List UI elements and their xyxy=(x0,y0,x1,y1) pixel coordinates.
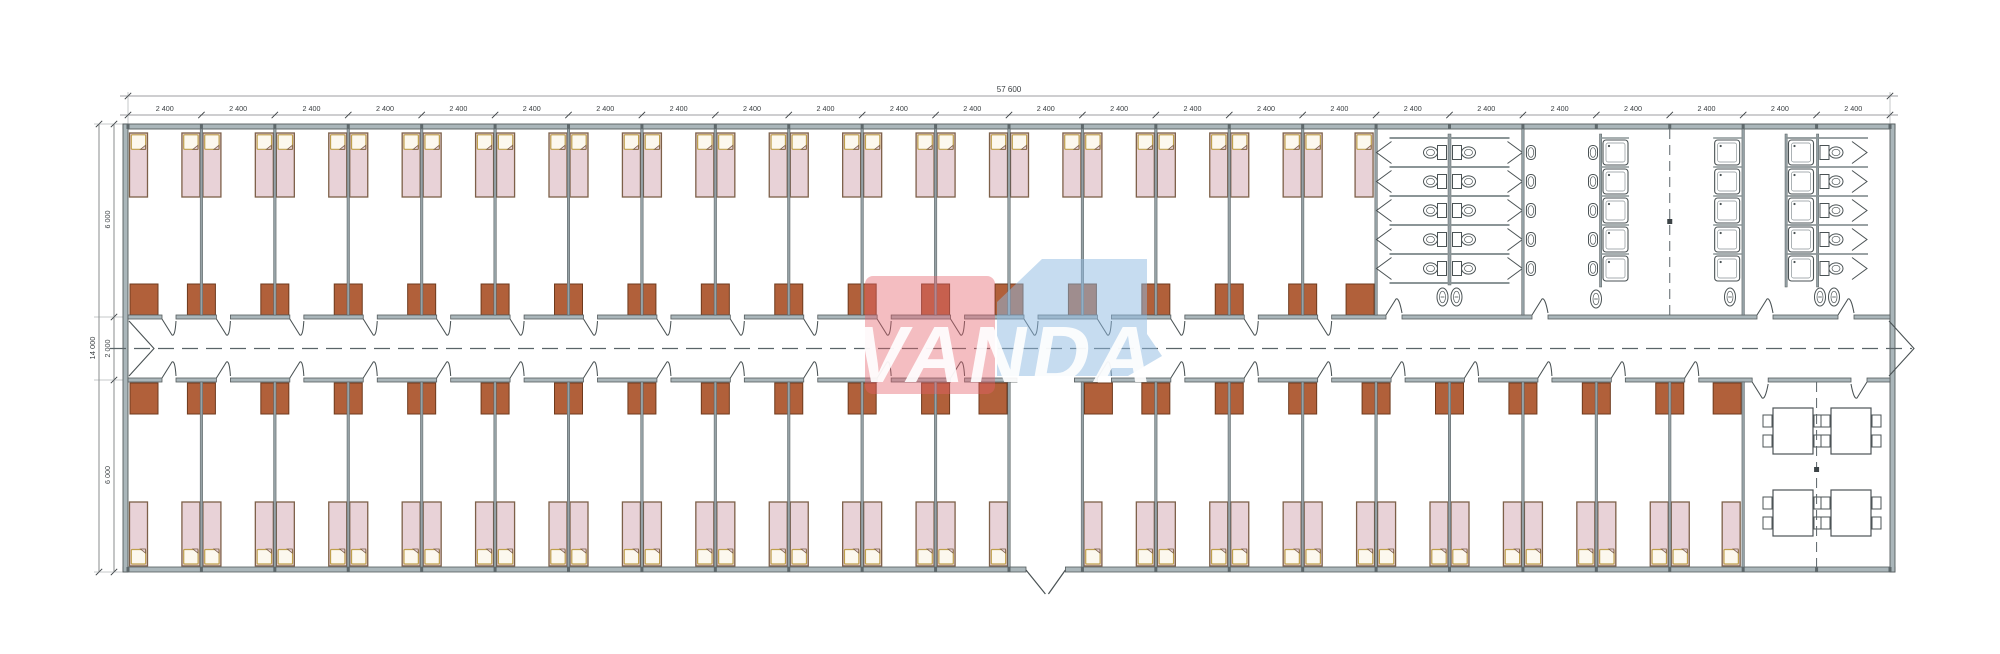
corridor-wall xyxy=(1773,315,1838,319)
wall-joint-tick xyxy=(714,124,717,129)
partition-wall xyxy=(714,382,717,567)
wardrobe xyxy=(1713,383,1741,414)
floor-plan-drawing: 57 6002 4002 4002 4002 4002 4002 4002 40… xyxy=(0,0,2000,654)
corridor-wall xyxy=(1258,378,1317,382)
wall-joint-tick xyxy=(1228,567,1231,572)
chair xyxy=(1821,415,1830,427)
wall-joint-tick xyxy=(1448,124,1451,129)
partition-wall xyxy=(861,382,864,567)
wall-joint-tick xyxy=(347,124,350,129)
corridor-wall xyxy=(128,378,162,382)
partition-wall xyxy=(788,129,791,315)
partition-wall xyxy=(1228,382,1231,567)
shower-icon xyxy=(1720,174,1722,176)
wall-joint-tick xyxy=(1154,567,1157,572)
toilet-icon xyxy=(1453,204,1462,218)
toilet-icon xyxy=(1820,204,1829,218)
shower-icon xyxy=(1793,174,1795,176)
wardrobe xyxy=(130,284,158,315)
shower-icon xyxy=(1720,203,1722,205)
chair xyxy=(1872,435,1881,447)
mount-wall xyxy=(1785,134,1787,287)
partition-wall xyxy=(1375,129,1378,315)
corridor-wall xyxy=(304,315,363,319)
wall-joint-tick xyxy=(200,567,203,572)
wall-joint-tick xyxy=(1742,124,1745,129)
corridor-wall xyxy=(1332,315,1386,319)
dimension-label-bay: 2 400 xyxy=(890,104,908,113)
wall-joint-tick xyxy=(273,124,276,129)
toilet-icon xyxy=(1453,262,1462,276)
sink-icon xyxy=(1528,235,1534,245)
partition-wall xyxy=(200,129,203,315)
wall-joint-tick xyxy=(1301,567,1304,572)
wardrobe xyxy=(1346,284,1374,315)
chair xyxy=(1821,497,1830,509)
wall-joint-tick xyxy=(640,567,643,572)
partition-wall xyxy=(200,382,203,567)
partition-wall xyxy=(494,129,497,315)
chair xyxy=(1763,415,1772,427)
toilet-icon xyxy=(1820,233,1829,247)
partition-wall xyxy=(1375,382,1378,567)
axis-marker xyxy=(1667,219,1672,224)
partition-wall xyxy=(1301,129,1304,315)
corridor-wall xyxy=(524,315,583,319)
dimension-label-bay: 2 400 xyxy=(1184,104,1202,113)
wall-joint-tick xyxy=(1008,124,1011,129)
corridor-wall xyxy=(128,315,162,319)
dimension-label-bay: 2 400 xyxy=(1624,104,1642,113)
dining-table xyxy=(1831,408,1871,454)
corridor-wall xyxy=(230,315,289,319)
shower-icon xyxy=(1608,261,1610,263)
toilet-icon xyxy=(1820,175,1829,189)
corridor-wall xyxy=(1185,315,1244,319)
sink-icon xyxy=(1590,148,1596,158)
sink-icon xyxy=(1528,148,1534,158)
corridor-wall xyxy=(1552,378,1611,382)
chair xyxy=(1872,517,1881,529)
sink-icon xyxy=(1590,206,1596,216)
partition-wall xyxy=(1008,129,1011,315)
wall-joint-tick xyxy=(934,124,937,129)
dimension-label-bay: 2 400 xyxy=(816,104,834,113)
corridor-wall xyxy=(230,378,289,382)
dimension-label-bay: 2 400 xyxy=(523,104,541,113)
partition-wall xyxy=(420,382,423,567)
dimension-label-bay: 2 400 xyxy=(1257,104,1275,113)
wall-joint-tick xyxy=(420,567,423,572)
wall-joint-tick xyxy=(127,567,130,572)
toilet-icon xyxy=(1832,178,1840,184)
wall-joint-tick xyxy=(200,124,203,129)
partition-wall xyxy=(641,382,644,567)
wall-joint-tick xyxy=(1008,567,1011,572)
chair xyxy=(1821,435,1830,447)
shower-icon xyxy=(1608,203,1610,205)
chair xyxy=(1872,497,1881,509)
wall-joint-tick xyxy=(1154,124,1157,129)
corridor-wall xyxy=(598,315,657,319)
dimension-label-bay: 2 400 xyxy=(303,104,321,113)
partition-wall xyxy=(347,129,350,315)
toilet-icon xyxy=(1438,146,1447,160)
corridor-wall xyxy=(744,315,803,319)
corridor-wall xyxy=(1548,315,1757,319)
partition-wall xyxy=(1081,382,1084,567)
corridor-wall xyxy=(1258,315,1317,319)
dimension-label-bay: 2 400 xyxy=(596,104,614,113)
dining-table xyxy=(1831,490,1871,536)
partition-wall xyxy=(1522,382,1525,567)
partition-wall xyxy=(274,382,277,567)
wall-joint-tick xyxy=(640,124,643,129)
toilet-icon xyxy=(1832,265,1840,271)
toilet-icon xyxy=(1427,178,1435,184)
toilet-icon xyxy=(1453,233,1462,247)
wall-joint-tick xyxy=(1889,124,1892,129)
toilet-icon xyxy=(1438,204,1447,218)
corridor-wall xyxy=(598,378,657,382)
wall-joint-tick xyxy=(1889,567,1892,572)
partition-wall xyxy=(567,382,570,567)
partition-wall xyxy=(788,382,791,567)
partition-wall xyxy=(1008,382,1011,567)
partition-wall xyxy=(1301,382,1304,567)
dimension-label-total: 57 600 xyxy=(997,85,1022,94)
wall-joint-tick xyxy=(1595,567,1598,572)
corridor-wall xyxy=(176,315,216,319)
partition-wall xyxy=(494,382,497,567)
partition-wall xyxy=(420,129,423,315)
toilet-icon xyxy=(1465,178,1473,184)
dimension-label-bay: 2 400 xyxy=(1844,104,1862,113)
corridor-wall xyxy=(1699,378,1752,382)
toilet-icon xyxy=(1832,149,1840,155)
shower-icon xyxy=(1720,145,1722,147)
corridor-wall xyxy=(1479,378,1538,382)
vanda-logo-label: VANDA xyxy=(847,311,1166,400)
dimension-label-left-total: 14 000 xyxy=(88,337,97,360)
wall-joint-tick xyxy=(1668,567,1671,572)
partition-wall xyxy=(1448,382,1451,567)
dining-table xyxy=(1773,408,1813,454)
sink-icon xyxy=(1528,264,1534,274)
wall-joint-tick xyxy=(1375,124,1378,129)
corridor-wall xyxy=(1854,315,1890,319)
dimension-label-bay: 2 400 xyxy=(449,104,467,113)
axis-marker xyxy=(1814,467,1819,472)
wall-joint-tick xyxy=(494,124,497,129)
corridor-wall xyxy=(671,378,730,382)
shower-icon xyxy=(1720,232,1722,234)
dimension-label-segment: 6 000 xyxy=(103,466,112,484)
dimension-label-bay: 2 400 xyxy=(1697,104,1715,113)
wall-joint-tick xyxy=(1521,567,1524,572)
partition-wall xyxy=(274,129,277,315)
shower-icon xyxy=(1793,145,1795,147)
toilet-icon xyxy=(1453,175,1462,189)
toilet-icon xyxy=(1453,146,1462,160)
shower-icon xyxy=(1608,174,1610,176)
wall-joint-tick xyxy=(1081,124,1084,129)
exterior-wall xyxy=(123,567,1026,572)
corridor-wall xyxy=(1332,378,1391,382)
corridor-wall xyxy=(524,378,583,382)
partition-wall xyxy=(1522,129,1525,315)
chair xyxy=(1763,435,1772,447)
dining-table xyxy=(1773,490,1813,536)
wall-joint-tick xyxy=(1815,567,1818,572)
dimension-label-bay: 2 400 xyxy=(229,104,247,113)
wall-joint-tick xyxy=(861,567,864,572)
corridor-wall xyxy=(1405,378,1464,382)
partition-wall xyxy=(1155,129,1158,315)
corridor-wall xyxy=(744,378,803,382)
dimension-label-bay: 2 400 xyxy=(1110,104,1128,113)
dimension-label-bay: 2 400 xyxy=(743,104,761,113)
vanda-logo-text: VANDA xyxy=(847,311,1166,400)
wall-joint-tick xyxy=(273,567,276,572)
partition-wall xyxy=(347,382,350,567)
wall-joint-tick xyxy=(1668,124,1671,129)
corridor-wall xyxy=(1625,378,1684,382)
wall-joint-tick xyxy=(420,124,423,129)
dimension-label-bay: 2 400 xyxy=(156,104,174,113)
corridor-wall xyxy=(377,315,436,319)
washroom-mount-wall xyxy=(1600,134,1602,287)
dimension-label-bay: 2 400 xyxy=(1771,104,1789,113)
wall-joint-tick xyxy=(127,124,130,129)
wall-joint-tick xyxy=(1521,124,1524,129)
dimension-label-bay: 2 400 xyxy=(670,104,688,113)
dimension-label-bay: 2 400 xyxy=(1037,104,1055,113)
shower-icon xyxy=(1793,203,1795,205)
dimension-label-bay: 2 400 xyxy=(1330,104,1348,113)
partition-wall xyxy=(861,129,864,315)
toilet-icon xyxy=(1438,262,1447,276)
corridor-wall xyxy=(1185,378,1244,382)
dimension-label-segment: 6 000 xyxy=(103,211,112,229)
partition-wall xyxy=(1742,129,1745,315)
sink-icon xyxy=(1528,177,1534,187)
toilet-icon xyxy=(1832,236,1840,242)
toilet-icon xyxy=(1820,146,1829,160)
exterior-wall xyxy=(1065,567,1895,572)
corridor-wall xyxy=(304,378,363,382)
dimension-label-bay: 2 400 xyxy=(1477,104,1495,113)
partition-wall xyxy=(641,129,644,315)
chair xyxy=(1872,415,1881,427)
partition-wall xyxy=(1669,382,1672,567)
chair xyxy=(1821,517,1830,529)
partition-wall xyxy=(934,382,937,567)
corridor-wall xyxy=(377,378,436,382)
chair xyxy=(1763,517,1772,529)
shower-icon xyxy=(1608,232,1610,234)
toilet-icon xyxy=(1465,265,1473,271)
wall-joint-tick xyxy=(1228,124,1231,129)
wall-joint-tick xyxy=(494,567,497,572)
toilet-icon xyxy=(1427,149,1435,155)
wall-joint-tick xyxy=(787,567,790,572)
partition-wall xyxy=(1595,382,1598,567)
wall-joint-tick xyxy=(787,124,790,129)
wc-spine-wall xyxy=(1448,134,1451,285)
shower-icon xyxy=(1608,145,1610,147)
corridor-wall xyxy=(451,378,510,382)
corridor-wall xyxy=(1768,378,1851,382)
toilet-icon xyxy=(1438,233,1447,247)
shower-icon xyxy=(1720,261,1722,263)
wall-joint-tick xyxy=(1375,567,1378,572)
partition-wall xyxy=(1742,382,1745,567)
sink-icon xyxy=(1590,235,1596,245)
wall-joint-tick xyxy=(1742,567,1745,572)
mount-wall xyxy=(1817,134,1819,287)
wall-joint-tick xyxy=(1301,124,1304,129)
partition-wall xyxy=(567,129,570,315)
corridor-wall xyxy=(176,378,216,382)
shower-icon xyxy=(1793,261,1795,263)
shower-icon xyxy=(1793,232,1795,234)
wall-joint-tick xyxy=(1815,124,1818,129)
toilet-icon xyxy=(1427,236,1435,242)
partition-wall xyxy=(1228,129,1231,315)
wall-joint-tick xyxy=(1081,567,1084,572)
dimension-label-bay: 2 400 xyxy=(1404,104,1422,113)
toilet-icon xyxy=(1465,207,1473,213)
sink-icon xyxy=(1590,264,1596,274)
wall-joint-tick xyxy=(861,124,864,129)
wall-joint-tick xyxy=(714,567,717,572)
partition-wall xyxy=(714,129,717,315)
corridor-wall xyxy=(1867,378,1890,382)
wardrobe xyxy=(130,383,158,414)
toilet-icon xyxy=(1465,236,1473,242)
sink-icon xyxy=(1590,177,1596,187)
corridor-wall xyxy=(451,315,510,319)
dimension-label-bay: 2 400 xyxy=(963,104,981,113)
toilet-icon xyxy=(1832,207,1840,213)
wall-joint-tick xyxy=(567,124,570,129)
toilet-icon xyxy=(1427,265,1435,271)
dimension-label-bay: 2 400 xyxy=(376,104,394,113)
toilet-icon xyxy=(1427,207,1435,213)
partition-wall xyxy=(1155,382,1158,567)
toilet-icon xyxy=(1820,262,1829,276)
corridor-wall xyxy=(1402,315,1532,319)
sink-icon xyxy=(1528,206,1534,216)
chair xyxy=(1763,497,1772,509)
toilet-icon xyxy=(1438,175,1447,189)
toilet-icon xyxy=(1465,149,1473,155)
wall-joint-tick xyxy=(567,567,570,572)
corridor-wall xyxy=(671,315,730,319)
wall-joint-tick xyxy=(1595,124,1598,129)
floor-plan: 57 6002 4002 4002 4002 4002 4002 4002 40… xyxy=(0,0,2000,654)
wall-joint-tick xyxy=(1448,567,1451,572)
wall-joint-tick xyxy=(347,567,350,572)
dimension-label-bay: 2 400 xyxy=(1551,104,1569,113)
wall-joint-tick xyxy=(934,567,937,572)
